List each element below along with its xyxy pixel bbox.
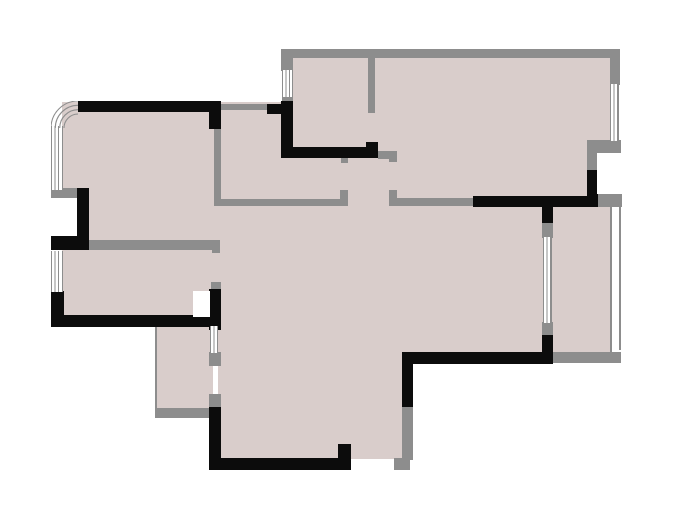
structural-wall	[542, 207, 553, 223]
partition-wall	[542, 322, 553, 336]
partition-wall	[214, 128, 221, 200]
partition-wall	[209, 352, 221, 366]
window	[210, 326, 218, 353]
structural-wall	[209, 112, 221, 129]
window	[610, 84, 619, 141]
structural-wall	[402, 352, 413, 407]
partition-wall	[214, 199, 341, 206]
window	[282, 70, 293, 97]
partition-wall	[221, 104, 268, 110]
partition-wall	[389, 151, 397, 162]
partition-wall	[88, 240, 213, 250]
window	[51, 251, 63, 292]
structural-wall	[281, 147, 366, 158]
partition-wall	[552, 352, 621, 363]
partition-wall	[209, 394, 221, 408]
partition-wall	[542, 222, 553, 238]
partition-wall	[610, 205, 612, 352]
partition-wall	[587, 153, 597, 170]
structural-wall	[473, 196, 598, 207]
floor-area	[156, 320, 213, 412]
floor-area	[88, 102, 221, 250]
partition-wall	[619, 207, 621, 350]
structural-wall	[402, 352, 553, 364]
corner-arc-window	[51, 101, 78, 128]
window	[51, 126, 63, 190]
door-opening	[597, 153, 618, 194]
partition-wall	[402, 407, 413, 460]
structural-wall	[51, 236, 89, 250]
partition-wall	[368, 58, 375, 113]
structural-wall	[209, 289, 221, 330]
structural-wall	[209, 407, 221, 470]
structural-wall	[209, 458, 351, 470]
floor-area	[293, 55, 612, 200]
partition-wall	[394, 458, 410, 470]
window	[543, 237, 552, 323]
structural-wall	[338, 444, 351, 458]
floor-plan	[0, 0, 684, 514]
partition-wall	[396, 198, 474, 206]
partition-wall	[212, 240, 220, 253]
partition-wall	[155, 322, 157, 412]
partition-wall	[281, 49, 293, 71]
partition-wall	[596, 194, 622, 207]
partition-wall	[340, 190, 348, 206]
partition-wall	[587, 140, 621, 153]
partition-wall	[155, 408, 213, 418]
partition-wall	[281, 49, 620, 58]
floor-area	[218, 200, 406, 462]
door-opening	[351, 459, 394, 470]
partition-wall	[610, 49, 620, 85]
structural-wall	[78, 101, 221, 112]
structural-wall	[366, 142, 378, 158]
door-opening	[193, 291, 210, 317]
